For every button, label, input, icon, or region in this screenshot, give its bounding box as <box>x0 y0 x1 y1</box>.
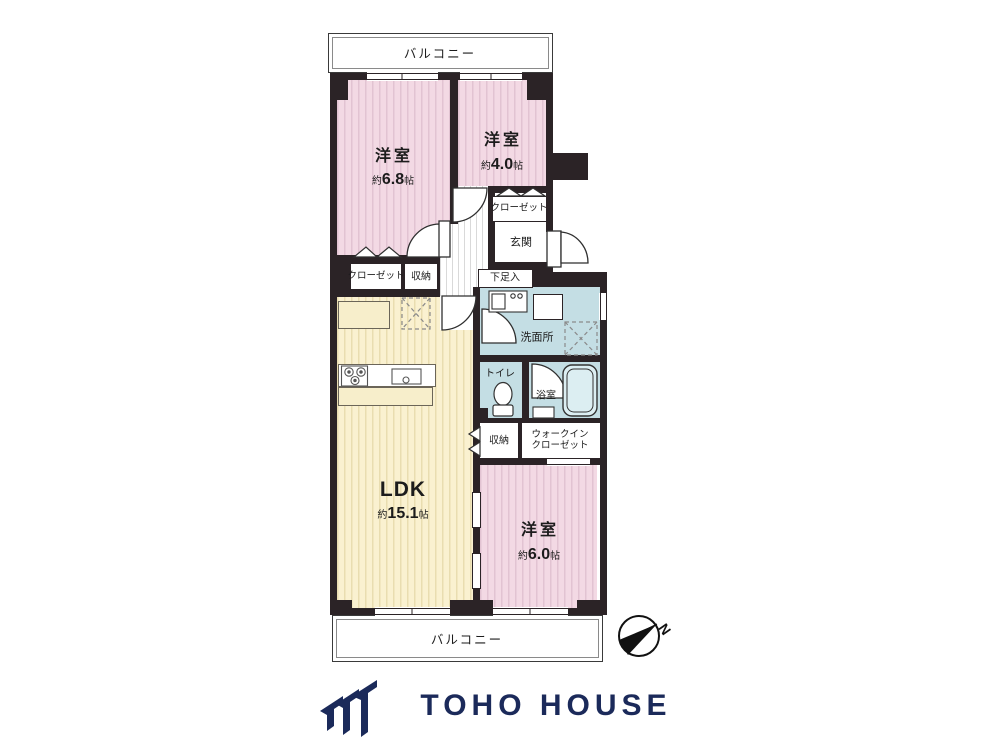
bifold-storage-lower-2 <box>469 442 480 456</box>
stove-icon <box>342 366 368 386</box>
window-top-left <box>367 72 438 81</box>
toho-house-logo-icon <box>320 680 377 737</box>
window-right-washroom <box>599 293 608 320</box>
window-top-right <box>460 72 522 81</box>
compass: N <box>619 616 674 656</box>
door-bedroom1 <box>407 224 440 257</box>
closet-upper-right-label: クローゼット <box>490 204 547 215</box>
toilet-icon <box>493 383 513 417</box>
toho-house-logo-text: TOHO HOUSE <box>406 689 686 723</box>
bedroom3-size: 約6.0帖 <box>518 546 560 564</box>
bedroom3-name: 洋室 <box>521 522 559 540</box>
washroom-sink-icon <box>489 291 527 312</box>
bedroom1-name: 洋室 <box>375 148 413 166</box>
bath-step-icon <box>533 407 554 418</box>
door-bedroom1-leaf <box>439 221 450 257</box>
bedroom1-size: 約6.8帖 <box>372 171 414 189</box>
refrigerator-spot-icon <box>402 298 430 329</box>
balcony-top-label: バルコニー <box>404 47 476 61</box>
toilet-label: トイレ <box>485 368 515 380</box>
bifold-storage-lower-1 <box>469 427 480 441</box>
front-door-swing <box>561 232 588 263</box>
window-bottom-bedroom3 <box>493 607 568 616</box>
bedroom2-size: 約4.0帖 <box>481 156 523 174</box>
front-door-leaf <box>547 231 561 267</box>
floorplan-page: N バルコニー 洋室 約6.8帖 洋室 約4.0帖 クローゼット 玄関 下足入 … <box>0 0 1000 750</box>
bathroom-label: 浴室 <box>536 390 556 402</box>
balcony-bottom-label: バルコニー <box>431 633 503 647</box>
bifold-closet-left-2 <box>377 247 401 257</box>
bedroom2-name: 洋室 <box>484 132 522 150</box>
kitchen-sink-icon <box>392 369 421 384</box>
shoe-box-label: 下足入 <box>490 272 520 284</box>
bifold-closet-right-2 <box>521 188 545 196</box>
door-washroom <box>482 309 516 343</box>
closet-left-label: クローゼット <box>347 272 404 283</box>
walk-in-closet-label: ウォークインクローゼット <box>531 430 588 452</box>
door-bedroom2 <box>453 188 487 222</box>
door-ldk <box>442 296 476 330</box>
washer-spot-icon <box>565 322 597 355</box>
bifold-closet-right-1 <box>497 188 521 196</box>
storage-lower-label: 収納 <box>489 435 509 447</box>
entrance-label: 玄関 <box>510 237 532 250</box>
window-bottom-ldk <box>375 607 450 616</box>
storage-upper-label: 収納 <box>411 271 431 283</box>
window-wic-bedroom3 <box>547 457 590 466</box>
ldk-size: 約15.1帖 <box>377 505 428 523</box>
ldk-name: LDK <box>380 478 426 502</box>
washroom-label: 洗面所 <box>521 332 554 345</box>
bifold-closet-left-1 <box>354 247 377 257</box>
